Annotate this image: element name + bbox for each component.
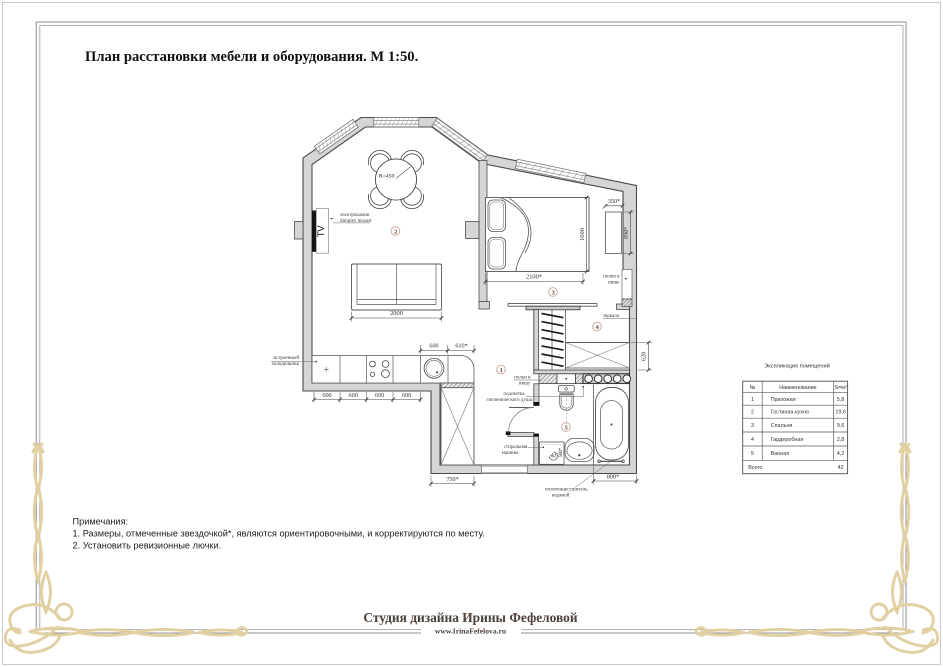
svg-text:Наименование: Наименование: [779, 385, 816, 391]
svg-text:4,2: 4,2: [837, 451, 845, 457]
svg-text:встроенный: встроенный: [274, 356, 300, 361]
svg-text:800*: 800*: [607, 473, 619, 480]
svg-text:№: №: [750, 385, 756, 391]
svg-text:стиральная: стиральная: [504, 445, 529, 450]
svg-text:1: 1: [500, 367, 503, 374]
svg-text:500*: 500*: [559, 447, 564, 457]
svg-text:Спальня: Спальня: [771, 423, 793, 429]
svg-text:600: 600: [322, 392, 331, 399]
svg-text:2: 2: [394, 228, 397, 235]
svg-text:гигиенического душа: гигиенического душа: [486, 398, 532, 403]
svg-text:3: 3: [751, 423, 754, 429]
svg-text:600: 600: [349, 392, 358, 399]
svg-text:42: 42: [838, 465, 844, 471]
svg-text:2. Установить ревизионные лючк: 2. Установить ревизионные лючки.: [73, 541, 222, 551]
svg-text:620: 620: [641, 352, 648, 361]
svg-text:Всего: Всего: [748, 465, 762, 471]
svg-text:4: 4: [596, 324, 599, 331]
svg-text:2: 2: [751, 410, 754, 416]
svg-text:1600: 1600: [579, 228, 586, 241]
svg-text:2100*: 2100*: [526, 274, 542, 281]
svg-text:План расстановки мебели и обор: План расстановки мебели и оборудования. …: [85, 49, 418, 65]
svg-text:зеркало: зеркало: [603, 314, 620, 319]
svg-text:350*: 350*: [608, 198, 620, 205]
svg-text:подсветка: подсветка: [503, 392, 525, 397]
svg-text:машина: машина: [502, 451, 520, 456]
svg-text:5: 5: [565, 424, 568, 431]
svg-text:Примечания:: Примечания:: [73, 517, 129, 527]
svg-text:2000: 2000: [390, 310, 403, 317]
svg-text:холодильник: холодильник: [272, 362, 300, 367]
svg-text:600: 600: [375, 392, 384, 399]
svg-text:1. Размеры, отмеченные звездоч: 1. Размеры, отмеченные звездочкой*, явля…: [73, 529, 485, 539]
svg-text:Экспликация помещений: Экспликация помещений: [764, 362, 829, 369]
svg-text:2,8: 2,8: [837, 437, 845, 443]
svg-text:600: 600: [402, 392, 411, 399]
svg-text:750*: 750*: [446, 476, 458, 483]
svg-text:водяной: водяной: [552, 494, 570, 499]
svg-text:R=450: R=450: [379, 174, 395, 180]
svg-text:610*: 610*: [455, 342, 467, 349]
svg-text:1: 1: [751, 397, 754, 403]
svg-text:www.IrinaFefelova.ru: www.IrinaFefelova.ru: [435, 627, 507, 636]
svg-text:4: 4: [751, 437, 754, 443]
svg-text:Студия дизайна Ирины Фефеловой: Студия дизайна Ирины Фефеловой: [363, 610, 577, 625]
svg-text:Гардеробная: Гардеробная: [771, 437, 804, 443]
svg-text:890*: 890*: [623, 227, 630, 239]
svg-text:5,8: 5,8: [837, 397, 845, 403]
svg-text:5: 5: [751, 451, 754, 457]
svg-text:нишу: нишу: [519, 382, 531, 387]
svg-text:S=м²: S=м²: [835, 385, 847, 391]
svg-text:электрокамин: электрокамин: [340, 213, 370, 218]
svg-text:9,6: 9,6: [837, 423, 845, 429]
svg-text:Прихожая: Прихожая: [771, 397, 796, 403]
svg-text:Ванная: Ванная: [771, 451, 790, 457]
svg-text:3: 3: [552, 289, 555, 296]
svg-text:Гостиная-кухня: Гостиная-кухня: [771, 410, 809, 416]
svg-text:нише: нише: [608, 281, 620, 286]
svg-text:полки в: полки в: [603, 275, 620, 280]
svg-text:TV: TV: [316, 225, 326, 238]
svg-text:19,6: 19,6: [835, 410, 846, 416]
svg-text:полотенцесушитель: полотенцесушитель: [545, 488, 588, 493]
svg-text:600: 600: [429, 342, 438, 349]
